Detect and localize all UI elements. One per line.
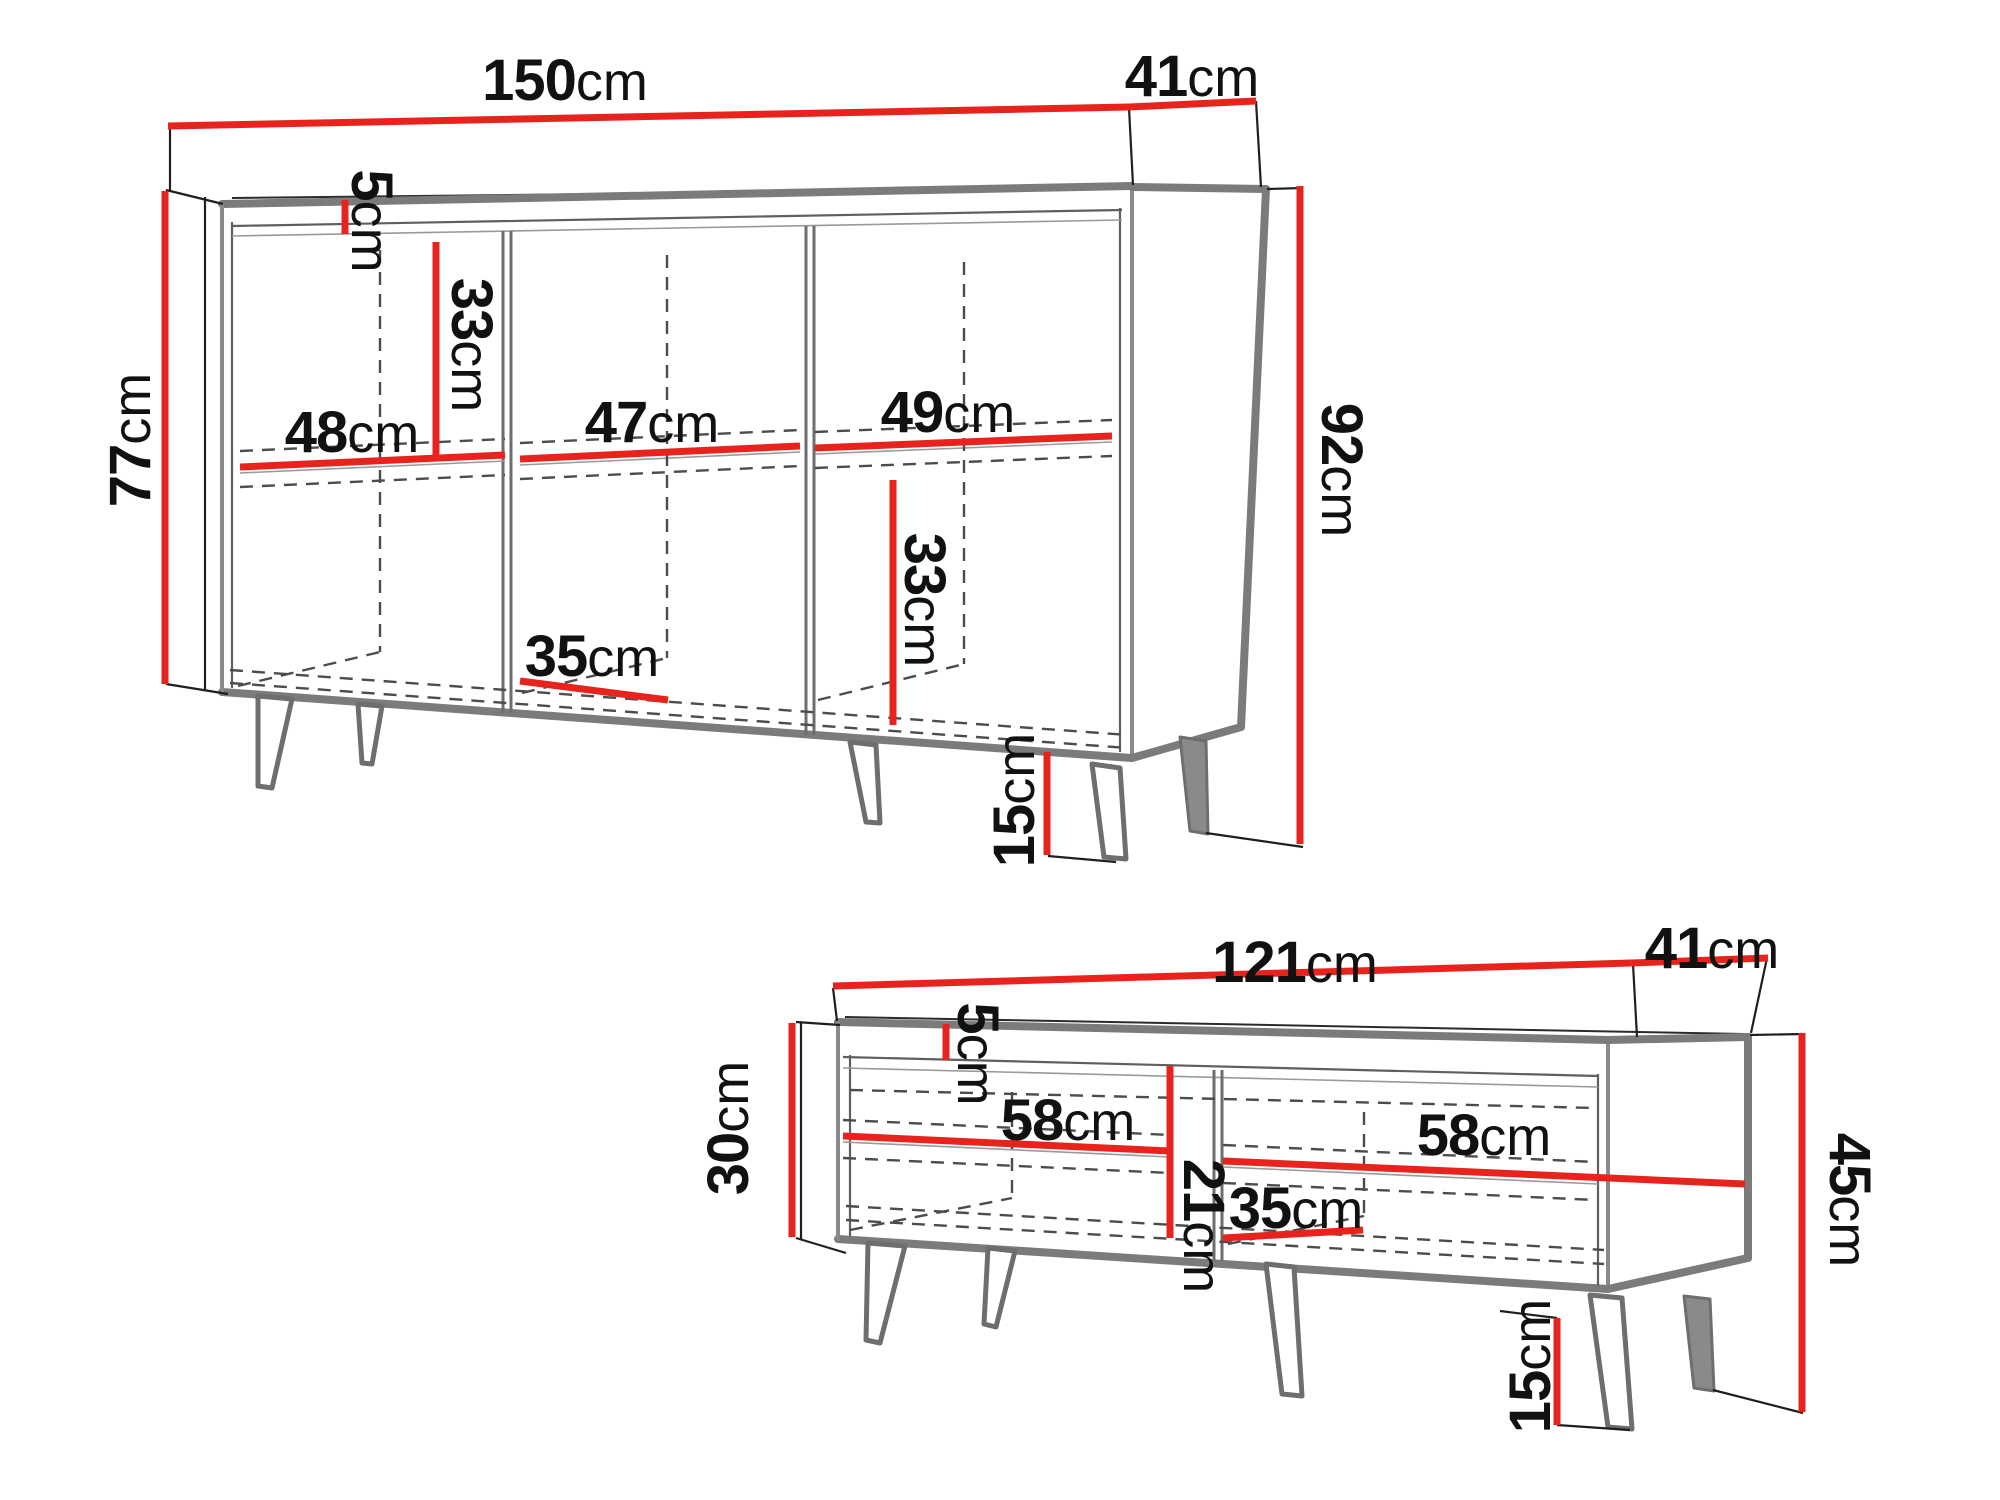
sideboard-depth-label: 41cm (1125, 44, 1260, 109)
tv-stand-body-height-label: 30cm (696, 1061, 761, 1196)
tv-stand-right-compartment-width-label: 58cm (1417, 1103, 1552, 1168)
tv-stand-diagram: 121cm 41cm 30cm 5cm 58cm 58cm 21cm 35cm … (696, 916, 1882, 1433)
sideboard-leg-height-label: 15cm (982, 733, 1047, 868)
tv-stand-compartment-height-label: 21cm (1171, 1159, 1236, 1294)
sideboard-left-compartment-width-label: 48cm (285, 400, 420, 465)
sideboard-diagram: 150cm 41cm 77cm 5cm 33cm 48cm 47cm 49cm … (98, 44, 1374, 867)
tv-stand-width-label: 121cm (1212, 930, 1378, 995)
furniture-leg (1180, 737, 1208, 834)
furniture-leg (358, 704, 382, 764)
tv-stand-left-compartment-width-label: 58cm (1001, 1088, 1136, 1153)
sideboard-width-label: 150cm (482, 48, 648, 113)
sideboard-top-gap-label: 5cm (339, 169, 404, 272)
furniture-leg (984, 1248, 1015, 1327)
furniture-leg (1266, 1264, 1302, 1396)
tv-stand-inner-depth-label: 35cm (1229, 1176, 1364, 1241)
tv-stand-leg-height-label: 15cm (1498, 1299, 1563, 1434)
dimension-diagram-page: 150cm 41cm 77cm 5cm 33cm 48cm 47cm 49cm … (0, 0, 2000, 1500)
dimension-diagram-canvas: 150cm 41cm 77cm 5cm 33cm 48cm 47cm 49cm … (0, 0, 2000, 1500)
tv-stand-total-height-label: 45cm (1817, 1133, 1882, 1268)
furniture-leg (258, 696, 292, 788)
sideboard-lower-compartment-height-label: 33cm (892, 533, 957, 668)
furniture-leg (1590, 1295, 1632, 1429)
furniture-leg (1092, 764, 1126, 859)
sideboard-middle-compartment-width-label: 47cm (585, 390, 720, 455)
tv-stand-depth-label: 41cm (1645, 916, 1780, 981)
furniture-leg (850, 742, 880, 823)
sideboard-inner-depth-label: 35cm (525, 624, 660, 689)
furniture-leg (866, 1243, 905, 1343)
furniture-leg (1684, 1296, 1714, 1391)
sideboard-total-height-label: 92cm (1309, 403, 1374, 538)
sideboard-upper-compartment-height-label: 33cm (439, 278, 504, 413)
sideboard-right-compartment-width-label: 49cm (881, 380, 1016, 445)
sideboard-body-height-label: 77cm (98, 373, 163, 508)
